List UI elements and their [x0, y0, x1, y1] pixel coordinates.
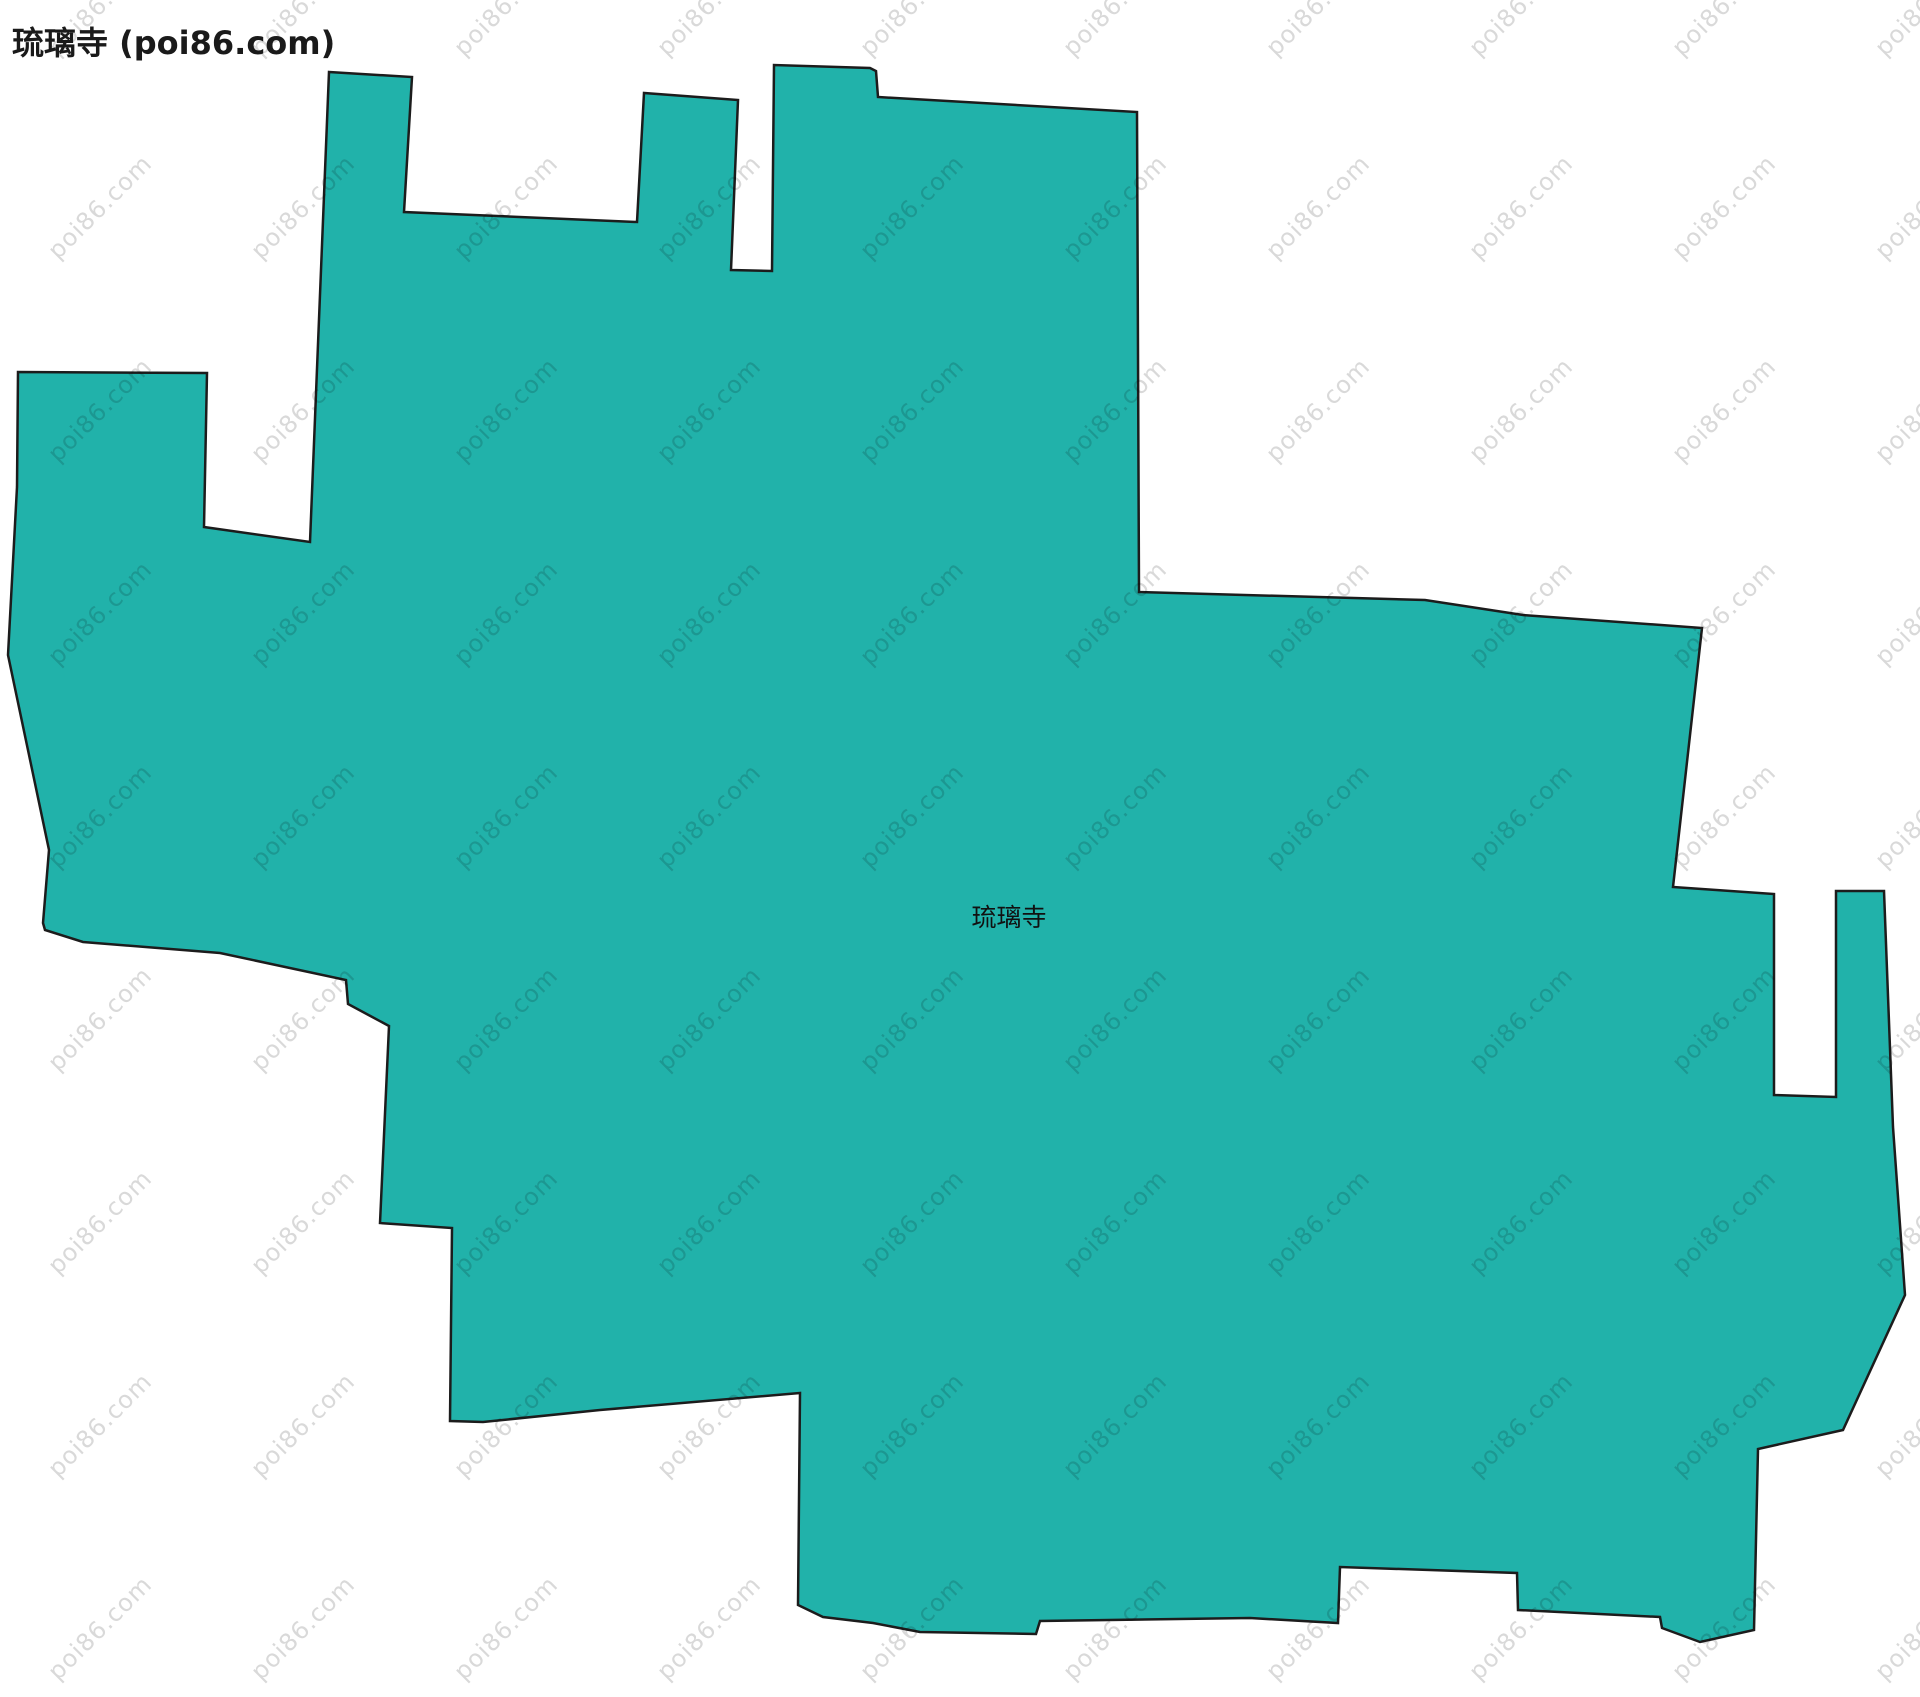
region-boundary-svg: [0, 0, 1920, 1697]
region-label: 琉璃寺: [971, 898, 1046, 934]
page-title: 琉璃寺 (poi86.com): [12, 18, 335, 64]
region-polygon: [8, 65, 1905, 1642]
map-canvas: poi86.compoi86.compoi86.compoi86.compoi8…: [0, 0, 1920, 1697]
